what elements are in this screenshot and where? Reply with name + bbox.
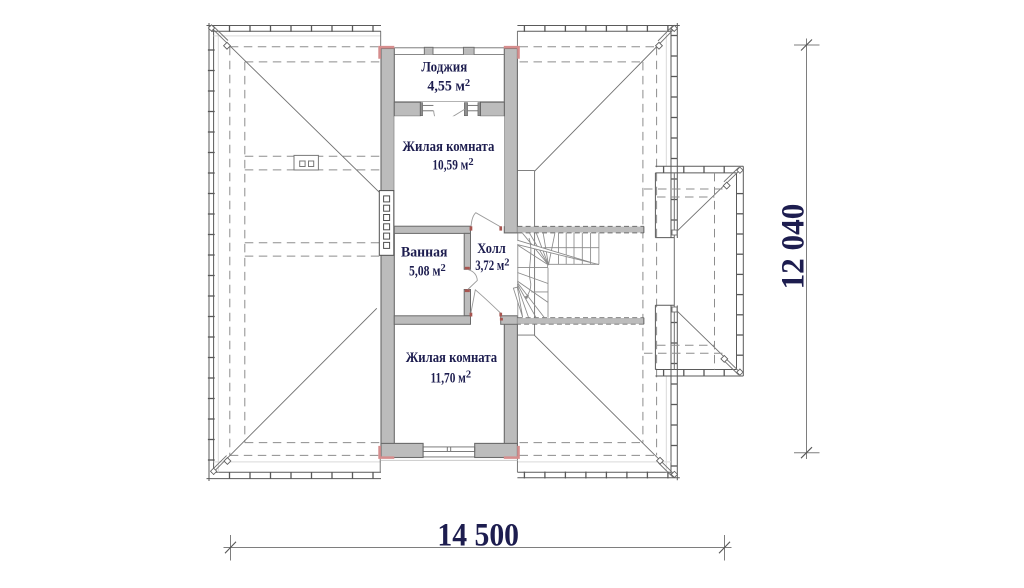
svg-text:11,70 м2: 11,70 м2: [431, 370, 472, 387]
svg-text:4,55 м2: 4,55 м2: [427, 78, 470, 95]
svg-text:Жилая комната: Жилая комната: [402, 139, 495, 155]
svg-text:10,59 м2: 10,59 м2: [432, 157, 473, 174]
svg-text:Холл: Холл: [477, 241, 506, 257]
svg-text:Лоджия: Лоджия: [421, 59, 467, 75]
svg-text:5,08 м2: 5,08 м2: [409, 263, 446, 280]
svg-text:Ванная: Ванная: [401, 244, 448, 260]
svg-text:Жилая комната: Жилая комната: [406, 350, 498, 366]
svg-text:12 040: 12 040: [776, 204, 812, 290]
svg-text:14 500: 14 500: [437, 517, 519, 553]
